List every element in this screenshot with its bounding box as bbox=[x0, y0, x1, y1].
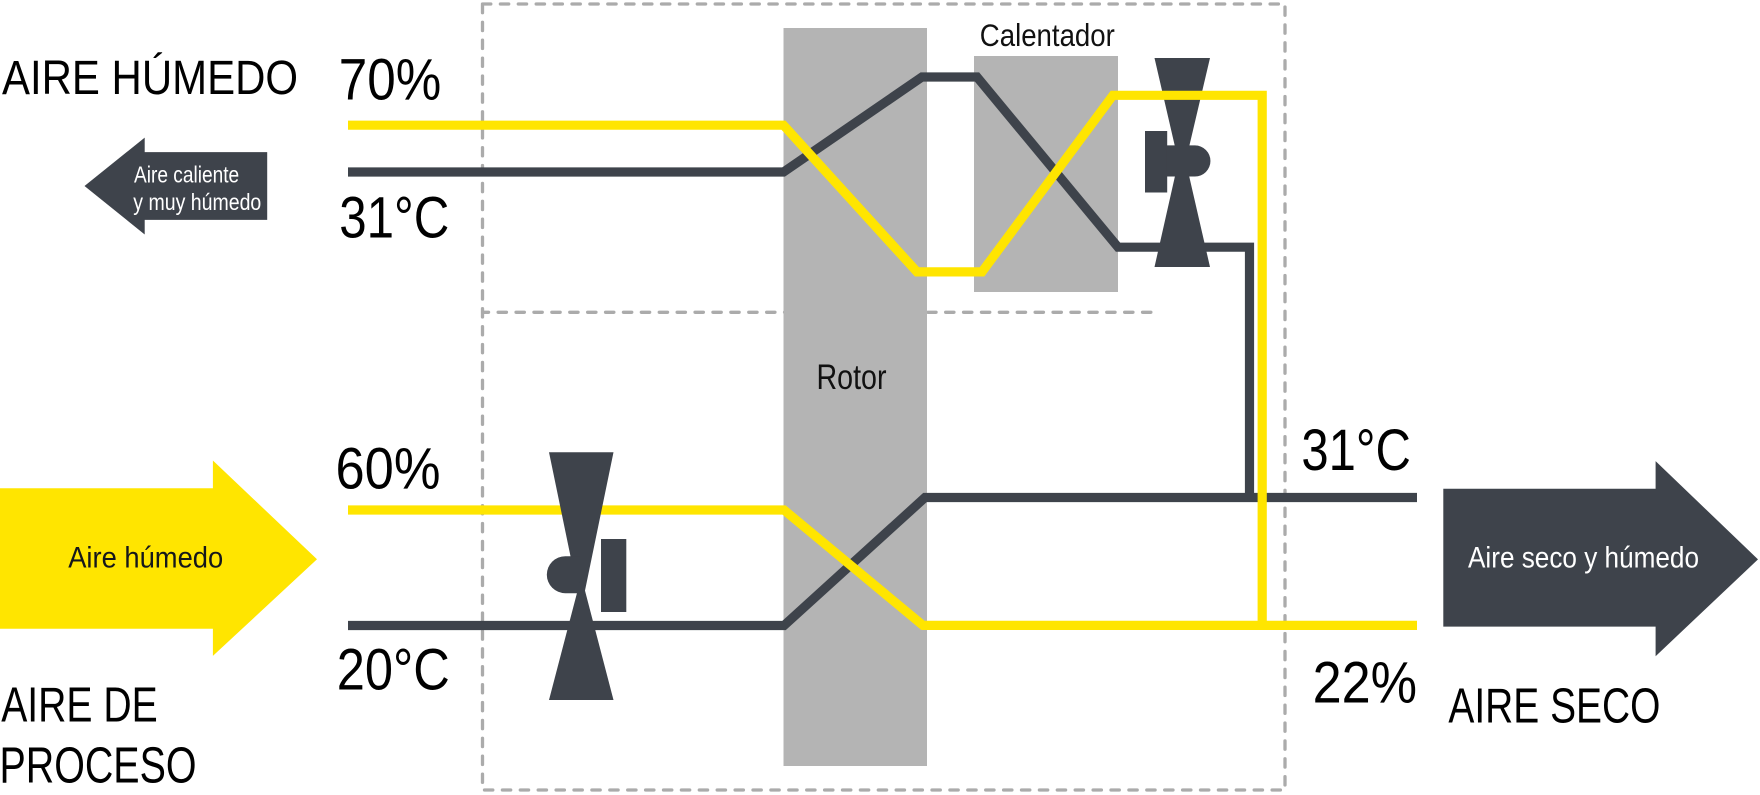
svg-text:22%: 22% bbox=[1313, 650, 1418, 715]
svg-text:Aire seco y húmedo: Aire seco y húmedo bbox=[1468, 541, 1699, 574]
svg-text:60%: 60% bbox=[336, 437, 441, 502]
svg-text:Calentador: Calentador bbox=[980, 17, 1115, 53]
svg-text:AIRE DE: AIRE DE bbox=[1, 678, 158, 733]
svg-text:AIRE HÚMEDO: AIRE HÚMEDO bbox=[2, 51, 298, 105]
svg-text:20°C: 20°C bbox=[337, 637, 450, 702]
svg-text:y muy húmedo: y muy húmedo bbox=[133, 189, 261, 215]
svg-text:31°C: 31°C bbox=[1301, 418, 1411, 483]
svg-text:PROCESO: PROCESO bbox=[0, 737, 197, 794]
svg-text:31°C: 31°C bbox=[339, 185, 449, 250]
svg-text:Aire caliente: Aire caliente bbox=[134, 162, 239, 188]
svg-text:Rotor: Rotor bbox=[817, 357, 887, 397]
svg-text:AIRE SECO: AIRE SECO bbox=[1448, 679, 1660, 734]
svg-text:Aire húmedo: Aire húmedo bbox=[68, 542, 223, 575]
svg-text:70%: 70% bbox=[339, 47, 442, 112]
